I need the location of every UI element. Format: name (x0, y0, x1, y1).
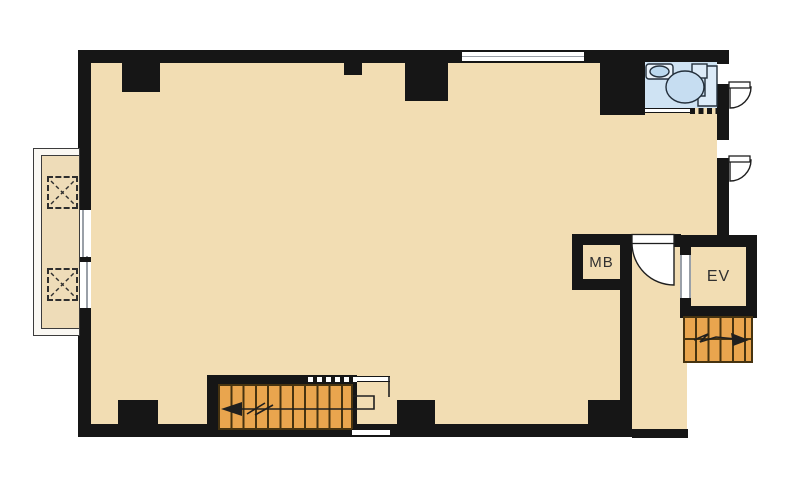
elevator-door-tick-bottom (680, 298, 691, 302)
stairwell-dashed-line (308, 377, 357, 382)
stairs-bottom (218, 384, 353, 430)
pillar-bottom-right (588, 400, 620, 424)
meter-box-label: MB (589, 255, 614, 270)
meter-box-room: MB (572, 234, 632, 290)
window-left-pane-upper (82, 210, 84, 262)
balcony-service-box-upper (47, 176, 78, 209)
stairs-elevator-landing (683, 316, 753, 363)
corridor-door-gap (632, 235, 674, 246)
toilet-entry-door-icon (729, 82, 751, 108)
window-top (459, 50, 587, 63)
wall-corridor-bottom (632, 429, 688, 438)
pillar-top-left (122, 50, 160, 92)
window-left-pane-lower (86, 256, 88, 308)
toilet-room-floor (645, 62, 717, 108)
elevator-door (680, 254, 691, 299)
window-top-mullion (462, 56, 584, 58)
elevator-label: EV (707, 269, 730, 285)
stairs-ev-midline (685, 338, 751, 340)
bottom-wall-opening (352, 429, 390, 436)
pillar-top-middle (405, 50, 448, 101)
floor-plan: MB EV (0, 0, 800, 480)
pillar-bottom-middle (397, 400, 435, 424)
pillar-top-small (344, 50, 362, 75)
toilet-entry-door-gap (717, 64, 729, 84)
main-entry-door-gap (717, 140, 729, 158)
pillar-bottom-left (118, 400, 158, 424)
toilet-left-wall-block (600, 50, 645, 115)
balcony-service-box-lower (47, 268, 78, 301)
corridor-floor (632, 243, 687, 430)
elevator-door-tick-top (680, 251, 691, 255)
elevator-room: EV (680, 235, 757, 318)
main-entry-door-icon (729, 156, 751, 181)
toilet-threshold-line (645, 108, 690, 113)
stair-rail-line (357, 376, 390, 382)
toilet-threshold-hatch (690, 108, 717, 114)
